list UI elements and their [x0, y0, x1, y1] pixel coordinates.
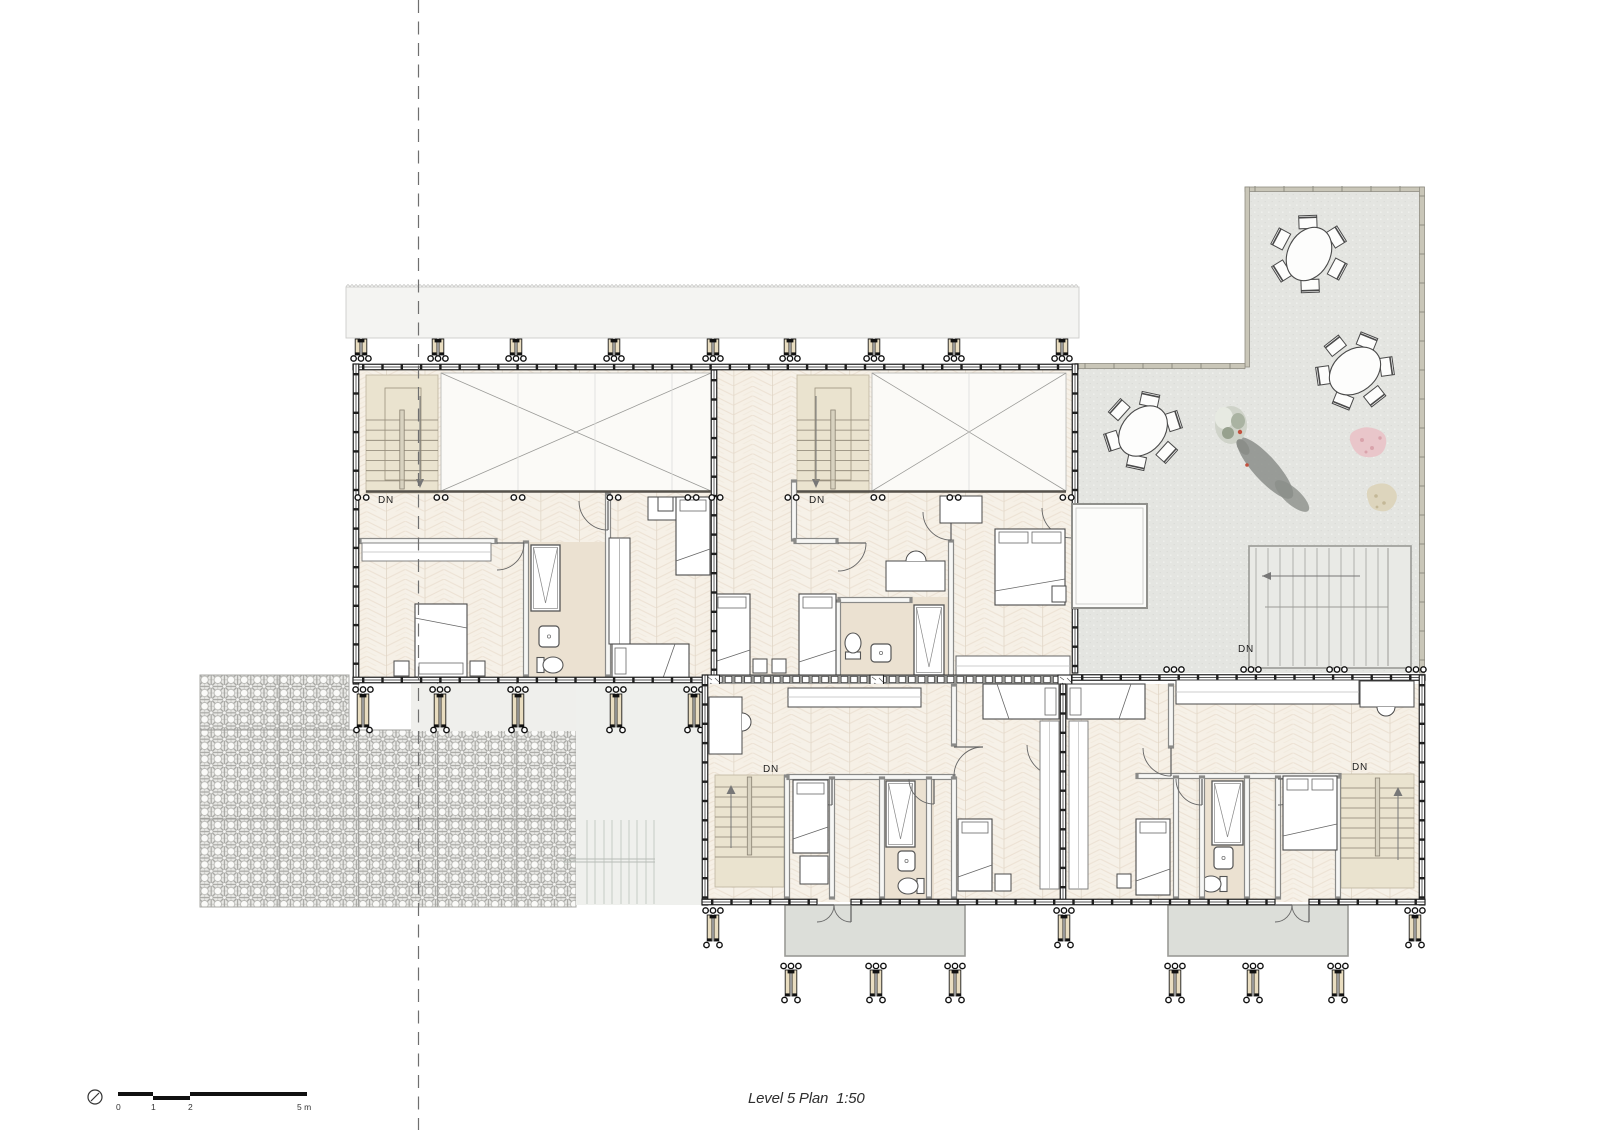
svg-text:DN: DN [378, 495, 394, 506]
svg-text:0: 0 [116, 1102, 121, 1112]
svg-text:DN: DN [809, 495, 825, 506]
svg-text:DN: DN [1238, 644, 1254, 655]
svg-text:DN: DN [763, 764, 779, 775]
svg-text:2: 2 [188, 1102, 193, 1112]
svg-text:1: 1 [151, 1102, 156, 1112]
svg-text:5 m: 5 m [297, 1102, 311, 1112]
svg-text:Level 5 Plan 1:50: Level 5 Plan 1:50 [748, 1090, 865, 1107]
svg-text:DN: DN [1352, 762, 1368, 773]
